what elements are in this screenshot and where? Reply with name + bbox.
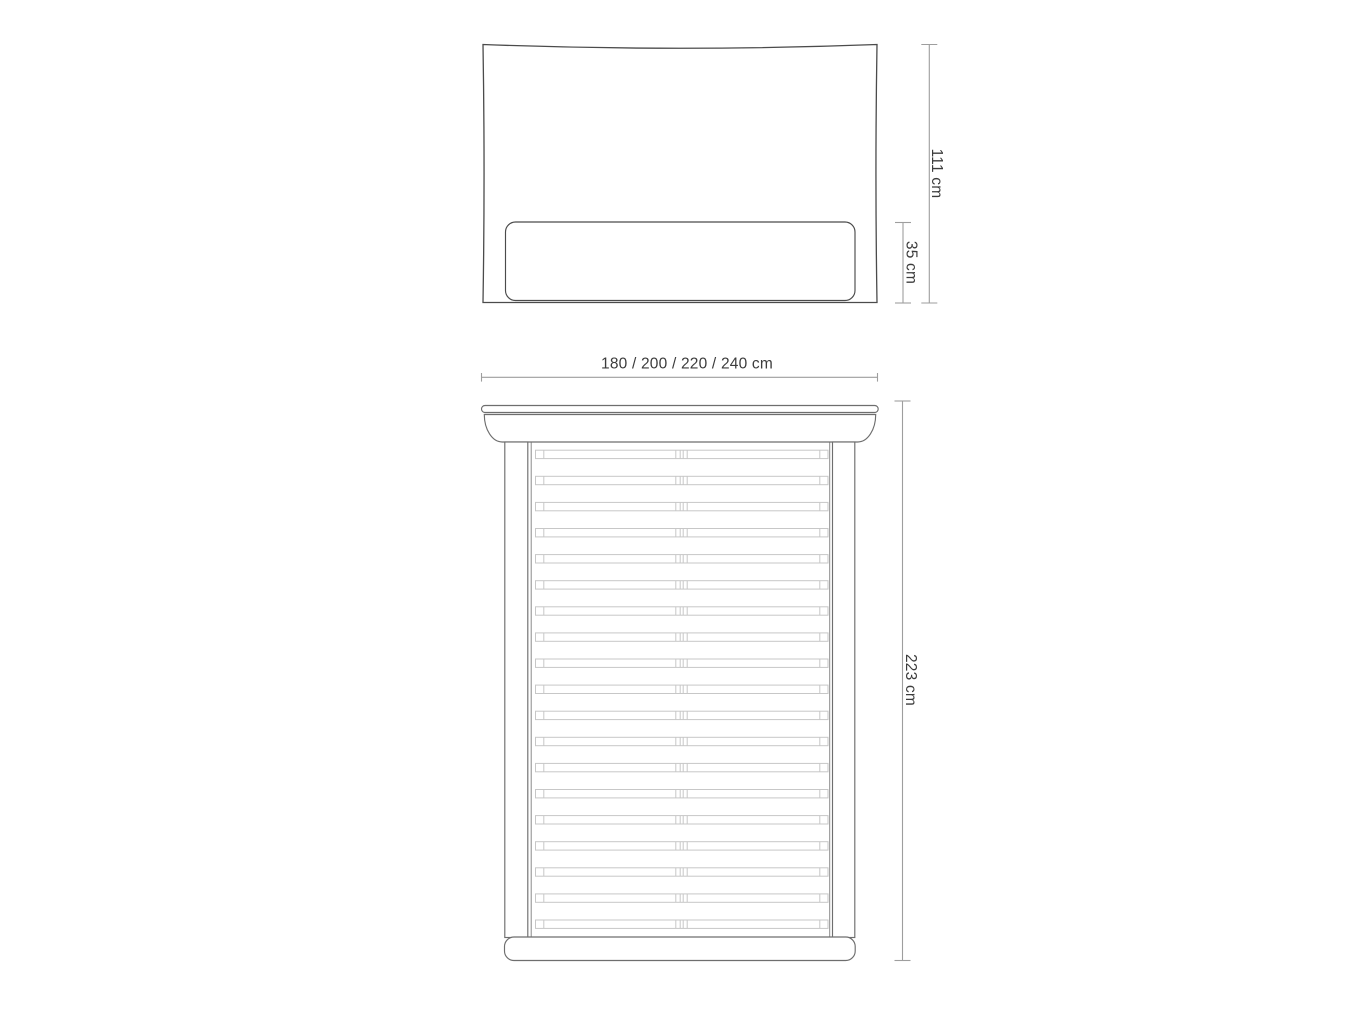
slat-row — [536, 476, 829, 484]
slat-row — [536, 502, 829, 510]
width-dimension: 180 / 200 / 220 / 240 cm — [482, 356, 878, 382]
slat-row — [536, 920, 829, 928]
left-side-rail — [505, 442, 528, 938]
footboard — [505, 937, 856, 961]
slat-row — [536, 737, 829, 745]
slat-row — [536, 868, 829, 876]
headboard-top-body — [484, 415, 875, 443]
bed-frame-top-view — [482, 406, 879, 961]
slat-row — [536, 607, 829, 615]
slat-row — [536, 685, 829, 693]
length-dimension: 223 cm — [895, 401, 920, 961]
headboard-top-lip — [482, 406, 879, 413]
slat-row — [536, 659, 829, 667]
slat-row — [536, 450, 829, 458]
headboard-front-view — [483, 45, 877, 303]
diagram-canvas: 111 cm 35 cm 180 / 200 / 220 / 240 cm — [0, 0, 1371, 1029]
right-side-rail — [833, 442, 855, 938]
length-label: 223 cm — [902, 654, 919, 706]
height-lower-dimension: 35 cm — [895, 223, 920, 304]
height-lower-label: 35 cm — [903, 241, 920, 284]
slat-row — [536, 894, 829, 902]
slat-row — [536, 816, 829, 824]
slat-row — [536, 555, 829, 563]
slat-area — [536, 450, 829, 928]
slat-row — [536, 763, 829, 771]
slat-row — [536, 529, 829, 537]
slat-row — [536, 842, 829, 850]
width-label: 180 / 200 / 220 / 240 cm — [601, 356, 773, 373]
slat-row — [536, 711, 829, 719]
bed-dimension-drawing: 111 cm 35 cm 180 / 200 / 220 / 240 cm — [0, 0, 1371, 1029]
headboard-base-panel — [506, 222, 856, 301]
slat-row — [536, 581, 829, 589]
height-total-dimension: 111 cm — [921, 45, 945, 304]
height-total-label: 111 cm — [928, 149, 945, 199]
slat-row — [536, 790, 829, 798]
slat-row — [536, 633, 829, 641]
